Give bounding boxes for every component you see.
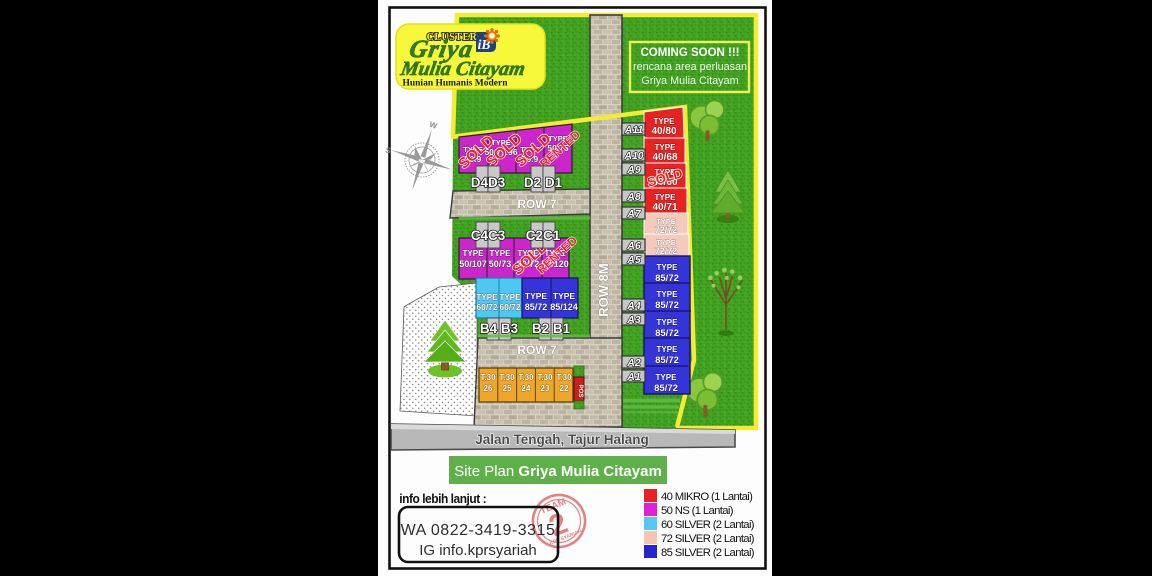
svg-text:72 SILVER (2 Lantai): 72 SILVER (2 Lantai)	[661, 533, 755, 545]
svg-text:TYPE: TYPE	[477, 293, 499, 302]
svg-text:POS: POS	[577, 385, 583, 398]
svg-text:22: 22	[560, 384, 569, 393]
svg-text:A3: A3	[626, 314, 641, 326]
svg-text:ROW 8M: ROW 8M	[596, 263, 611, 316]
svg-text:85/72: 85/72	[655, 328, 679, 339]
svg-text:TYPE: TYPE	[490, 249, 512, 258]
svg-text:Site Plan Griya Mulia Citayam: Site Plan Griya Mulia Citayam	[454, 463, 662, 480]
svg-text:T.30: T.30	[480, 373, 496, 382]
svg-text:60/72: 60/72	[476, 302, 498, 312]
svg-text:rencana area perluasan: rencana area perluasan	[633, 61, 747, 73]
svg-text:Griya Mulia Citayam: Griya Mulia Citayam	[641, 75, 738, 87]
svg-text:TYPE: TYPE	[657, 318, 679, 327]
svg-text:85/72: 85/72	[655, 355, 679, 366]
svg-text:T.30: T.30	[537, 373, 553, 382]
svg-text:D4D3: D4D3	[471, 175, 506, 190]
svg-text:D2 D1: D2 D1	[524, 175, 563, 190]
svg-text:TYPE: TYPE	[525, 291, 548, 301]
svg-text:info lebih lanjut :: info lebih lanjut :	[399, 492, 486, 507]
svg-text:TYPE: TYPE	[500, 293, 522, 302]
svg-text:COMING SOON !!!: COMING SOON !!!	[640, 47, 739, 59]
svg-text:85/72: 85/72	[654, 383, 678, 394]
svg-text:24: 24	[522, 384, 531, 393]
svg-text:B4 B3: B4 B3	[480, 321, 519, 336]
svg-text:40/68: 40/68	[652, 152, 677, 163]
svg-text:85/72: 85/72	[655, 273, 679, 284]
svg-text:TYPE: TYPE	[655, 193, 677, 202]
svg-text:A2: A2	[626, 357, 641, 369]
svg-text:Hunian Humanis Modern: Hunian Humanis Modern	[402, 79, 508, 89]
svg-text:ROW 7: ROW 7	[517, 343, 557, 357]
svg-text:C2C1: C2C1	[526, 228, 561, 243]
svg-text:40/80: 40/80	[651, 126, 676, 137]
svg-text:40/71: 40/71	[652, 202, 677, 213]
svg-text:26: 26	[484, 384, 493, 393]
svg-text:T.30: T.30	[499, 373, 515, 382]
svg-text:B2 B1: B2 B1	[532, 321, 571, 336]
svg-text:40 MIKRO (1 Lantai): 40 MIKRO (1 Lantai)	[661, 491, 753, 503]
svg-text:IG info.kprsyariah: IG info.kprsyariah	[419, 542, 537, 559]
svg-text:60/72: 60/72	[499, 302, 521, 312]
svg-text:A4: A4	[626, 300, 641, 312]
svg-text:A6: A6	[626, 240, 641, 252]
svg-text:T.30: T.30	[518, 373, 534, 382]
svg-text:50/73: 50/73	[489, 259, 512, 269]
svg-text:A7: A7	[626, 208, 642, 220]
svg-text:WA 0822-3419-3315: WA 0822-3419-3315	[401, 522, 556, 539]
svg-text:T.30: T.30	[556, 373, 572, 382]
svg-text:TYPE: TYPE	[553, 291, 576, 301]
svg-text:A9: A9	[626, 164, 641, 176]
svg-text:25: 25	[503, 384, 512, 393]
svg-text:TYPE: TYPE	[656, 373, 678, 382]
svg-text:85/72: 85/72	[655, 300, 679, 311]
svg-text:A5: A5	[626, 254, 641, 266]
svg-text:Mulia Citayam: Mulia Citayam	[398, 58, 527, 80]
svg-text:50 NS (1 Lantai): 50 NS (1 Lantai)	[661, 505, 734, 517]
svg-text:TYPE: TYPE	[655, 143, 677, 152]
svg-text:TYPE: TYPE	[657, 345, 679, 354]
svg-text:TYPE: TYPE	[657, 263, 679, 272]
svg-text:Jalan Tengah, Tajur Halang: Jalan Tengah, Tajur Halang	[475, 432, 649, 447]
svg-text:ROW 7: ROW 7	[517, 197, 557, 211]
svg-text:85/124: 85/124	[550, 302, 578, 312]
svg-text:A8: A8	[626, 191, 641, 203]
svg-text:A11: A11	[624, 124, 644, 136]
svg-text:A10: A10	[623, 150, 643, 162]
svg-text:72/72: 72/72	[655, 246, 678, 256]
svg-text:85/72: 85/72	[525, 302, 548, 312]
svg-text:TYPE: TYPE	[654, 117, 676, 126]
svg-text:50/107: 50/107	[459, 259, 487, 269]
svg-text:A1: A1	[626, 371, 641, 383]
svg-text:23: 23	[541, 384, 550, 393]
svg-text:72/72: 72/72	[655, 225, 678, 235]
svg-text:60 SILVER (2 Lantai): 60 SILVER (2 Lantai)	[661, 519, 755, 531]
svg-text:85 SILVER (2 Lantai): 85 SILVER (2 Lantai)	[661, 547, 755, 559]
svg-text:C4C3: C4C3	[471, 228, 506, 243]
svg-text:TYPE: TYPE	[463, 249, 485, 258]
svg-text:TYPE: TYPE	[657, 290, 679, 299]
